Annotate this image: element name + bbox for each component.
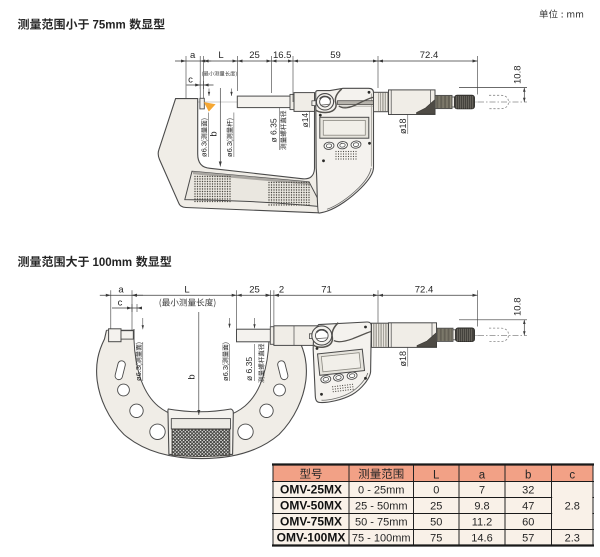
svg-text:c: c xyxy=(118,298,123,309)
svg-text:b: b xyxy=(525,470,531,482)
svg-text:ø6.3: ø6.3 xyxy=(221,366,230,381)
svg-text:2.8: 2.8 xyxy=(565,501,580,513)
svg-text:16.5: 16.5 xyxy=(273,50,292,61)
svg-text:32: 32 xyxy=(522,485,534,497)
svg-text:100mm: 100mm xyxy=(93,257,133,269)
svg-text:10.8: 10.8 xyxy=(513,66,524,85)
svg-text:OMV-50MX: OMV-50MX xyxy=(280,499,342,513)
svg-text:57: 57 xyxy=(522,533,534,545)
svg-text:11.2: 11.2 xyxy=(472,517,493,529)
svg-text:50 - 75mm: 50 - 75mm xyxy=(355,517,408,529)
svg-text:ø18: ø18 xyxy=(398,118,408,134)
svg-text:OMV-25MX: OMV-25MX xyxy=(280,483,342,497)
svg-text:25: 25 xyxy=(249,284,260,295)
svg-text:75mm: 75mm xyxy=(93,20,126,32)
svg-text:7: 7 xyxy=(479,485,485,497)
svg-text:c: c xyxy=(188,75,193,86)
svg-text:b: b xyxy=(187,374,198,379)
svg-text:25: 25 xyxy=(249,50,260,61)
svg-text:75 - 100mm: 75 - 100mm xyxy=(352,533,411,545)
svg-text:ø14: ø14 xyxy=(300,113,310,128)
svg-text:OMV-100MX: OMV-100MX xyxy=(277,531,346,545)
svg-text:a: a xyxy=(190,50,196,61)
svg-text:75: 75 xyxy=(430,533,442,545)
svg-text:25 - 50mm: 25 - 50mm xyxy=(355,501,408,513)
svg-text:a: a xyxy=(118,284,124,295)
svg-text:25: 25 xyxy=(430,501,442,513)
svg-text:L: L xyxy=(218,50,223,61)
svg-text:60: 60 xyxy=(522,517,534,529)
svg-text:50: 50 xyxy=(430,517,442,529)
svg-text:ø6.3: ø6.3 xyxy=(134,366,143,381)
svg-text:b: b xyxy=(209,131,220,136)
svg-text:2.3: 2.3 xyxy=(565,533,580,545)
svg-text:9.8: 9.8 xyxy=(474,501,489,513)
svg-text:14.6: 14.6 xyxy=(471,533,492,545)
svg-text:47: 47 xyxy=(522,501,534,513)
svg-text:71: 71 xyxy=(321,284,332,295)
svg-text:ø6.3: ø6.3 xyxy=(225,142,234,157)
svg-text:72.4: 72.4 xyxy=(415,284,434,295)
svg-text:OMV-75MX: OMV-75MX xyxy=(280,515,342,529)
svg-text:ø 6.35: ø 6.35 xyxy=(244,357,254,381)
svg-text:2: 2 xyxy=(279,284,284,295)
svg-text:L: L xyxy=(433,470,440,482)
svg-text:59: 59 xyxy=(330,50,341,61)
svg-text:ø6.3: ø6.3 xyxy=(200,142,209,157)
svg-text:10.8: 10.8 xyxy=(513,298,524,317)
svg-text:c: c xyxy=(569,470,575,482)
svg-text:0 - 25mm: 0 - 25mm xyxy=(358,485,404,497)
svg-text:ø18: ø18 xyxy=(398,351,408,367)
svg-text:0: 0 xyxy=(433,485,439,497)
svg-text:ø 6.35: ø 6.35 xyxy=(269,118,279,142)
svg-text:L: L xyxy=(184,284,189,295)
svg-text:72.4: 72.4 xyxy=(420,50,439,61)
svg-text:a: a xyxy=(479,470,486,482)
